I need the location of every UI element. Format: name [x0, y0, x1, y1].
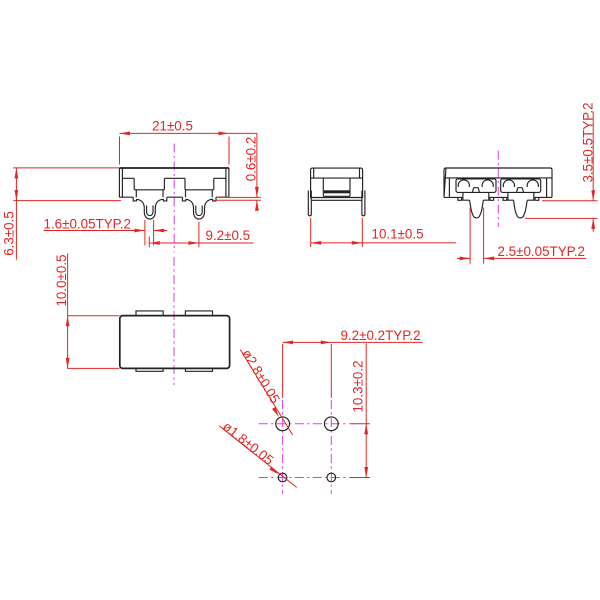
svg-text:1.6±0.05TYP.2: 1.6±0.05TYP.2: [44, 216, 132, 231]
svg-text:0.6±0.2: 0.6±0.2: [243, 137, 258, 182]
svg-text:9.2±0.2TYP.2: 9.2±0.2TYP.2: [341, 328, 421, 343]
svg-text:10.0±0.5: 10.0±0.5: [54, 254, 69, 306]
svg-text:6.3±0.5: 6.3±0.5: [2, 211, 17, 256]
svg-text:21±0.5: 21±0.5: [152, 119, 193, 134]
svg-text:ø2.8±0.05: ø2.8±0.05: [239, 347, 283, 406]
svg-text:10.3±0.2: 10.3±0.2: [351, 360, 366, 412]
svg-text:ø1.8±0.05: ø1.8±0.05: [220, 419, 276, 468]
svg-text:10.1±0.5: 10.1±0.5: [372, 227, 424, 242]
svg-text:3.5±0.5TYP.2: 3.5±0.5TYP.2: [580, 102, 595, 182]
svg-text:9.2±0.5: 9.2±0.5: [206, 228, 251, 243]
svg-text:2.5±0.05TYP.2: 2.5±0.05TYP.2: [498, 244, 586, 259]
